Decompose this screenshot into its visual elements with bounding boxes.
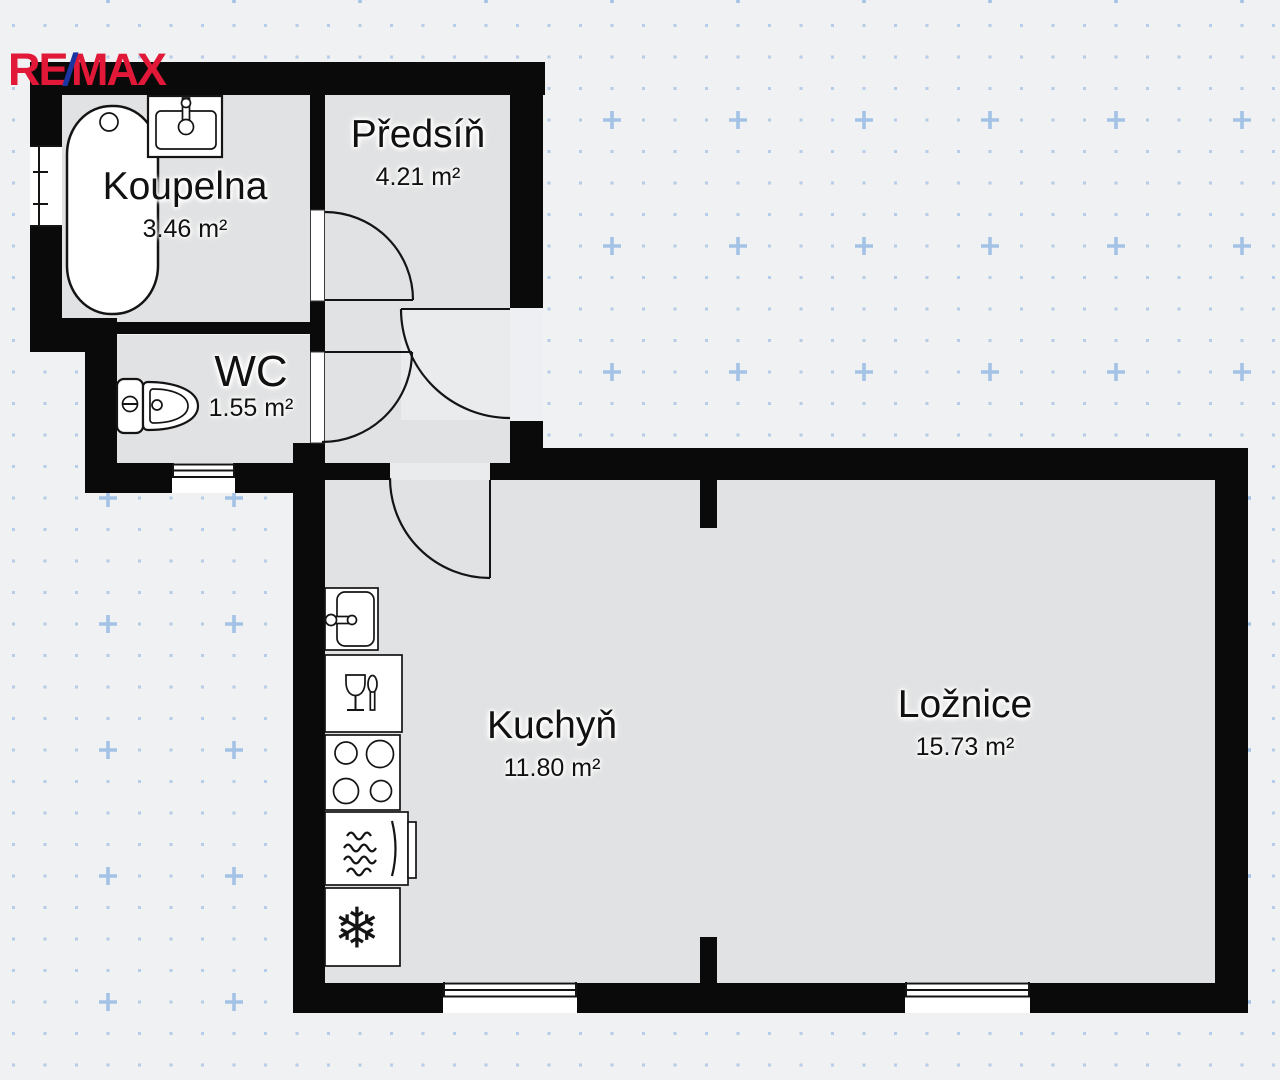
divider-stub-top (700, 480, 717, 528)
refrigerator: ❄ (325, 888, 400, 966)
floor-plan-canvas: ❄ RE/MAX Koupelna 3.46 m² Předsíň 4.21 m… (0, 0, 1280, 1080)
floor-plan: ❄ (0, 0, 1280, 1080)
logo-max: MAX (71, 44, 165, 95)
entry-door-opening (510, 308, 543, 421)
snowflake-icon: ❄ (334, 897, 381, 962)
window-wc (172, 463, 235, 493)
remax-logo: RE/MAX (8, 47, 165, 92)
window-kuchyn (443, 982, 577, 1013)
logo-re: RE (8, 44, 67, 95)
bathroom-door-leaf (311, 210, 325, 301)
wc-door-leaf (311, 352, 325, 443)
dishwasher (325, 655, 402, 732)
divider-stub-bottom (700, 937, 717, 983)
room-kuchyn-loznice-floor (325, 480, 1215, 983)
oven-door (408, 822, 416, 878)
oven (325, 812, 416, 885)
cooktop (325, 735, 400, 810)
bathtub (67, 106, 158, 314)
window-koupelna (30, 145, 62, 227)
kitchen-sink (325, 588, 378, 650)
washbasin (148, 96, 222, 157)
room-fills (62, 95, 1215, 983)
kitchen-door-passage (390, 463, 490, 480)
window-loznice (905, 982, 1030, 1013)
